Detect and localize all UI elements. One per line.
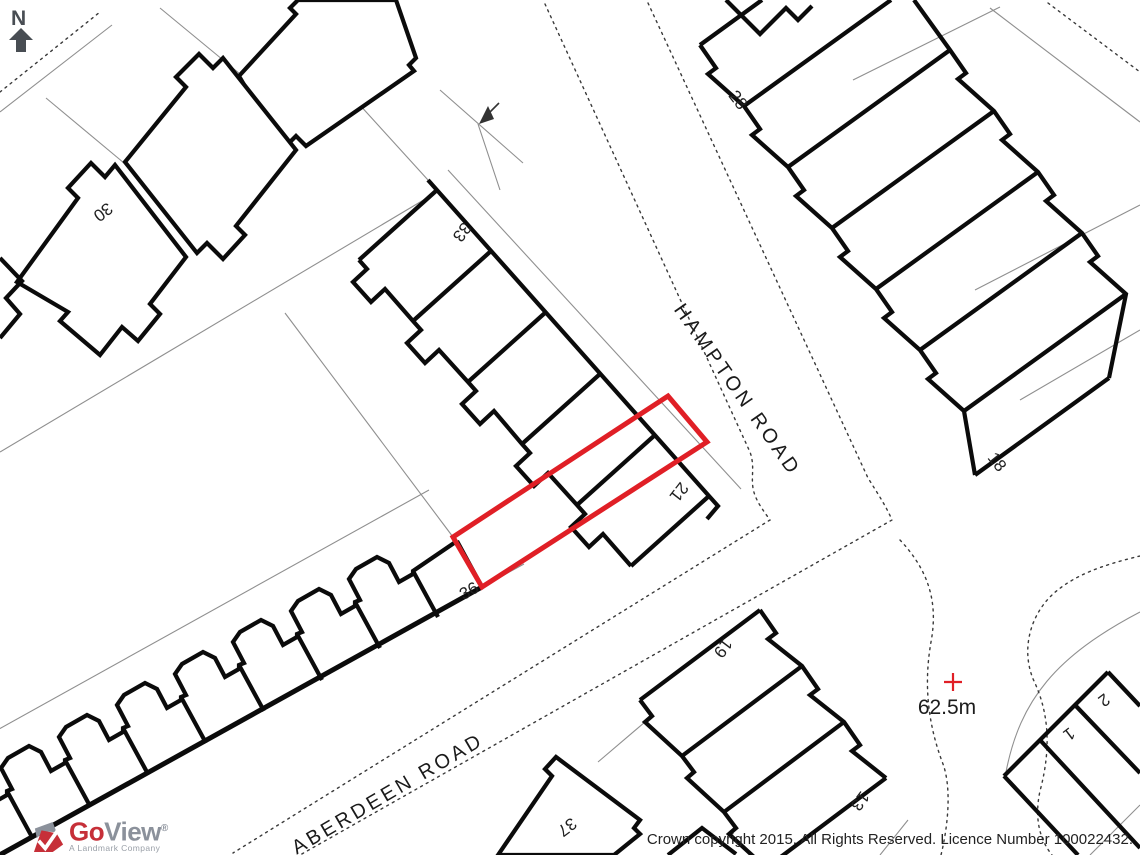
north-label: N: [11, 7, 26, 30]
north-arrow: N: [9, 7, 33, 52]
road-label-aberdeen: ABERDEEN ROAD: [288, 729, 488, 855]
buildings-middle-terrace: [353, 180, 718, 566]
copyright-notice: Crown copyright 2015. All Rights Reserve…: [647, 831, 1133, 848]
hampton-road-east-edge: [300, 3, 892, 855]
site-plan-map: 62.5m HAMPTON ROAD ABERDEEN ROAD 30 33 2…: [0, 0, 1140, 855]
spot-height-marker: 62.5m: [918, 673, 976, 719]
spot-height-label: 62.5m: [918, 696, 976, 719]
buildings-south-block: [498, 610, 886, 855]
top-right-road-edge: [1048, 3, 1140, 72]
open-space-edge-right: [1028, 556, 1140, 855]
site-plan-page: 62.5m HAMPTON ROAD ABERDEEN ROAD 30 33 2…: [0, 0, 1140, 855]
house-number-2: 2: [1095, 690, 1114, 711]
goview-logo: GoView® A Landmark Company: [33, 819, 168, 853]
spot-height-cross-icon: [944, 673, 962, 691]
goview-logo-icon: [33, 821, 65, 853]
house-number-1: 1: [1060, 724, 1079, 745]
goview-logo-text: GoView® A Landmark Company: [69, 819, 168, 853]
house-number-33: 33: [449, 219, 476, 246]
building-37: [498, 757, 640, 855]
buildings-bottom-right-block: [1004, 672, 1140, 855]
right-block-east-edge: [914, 0, 1126, 378]
house-number-19: 19: [710, 635, 737, 662]
goview-wordmark: GoView®: [69, 819, 168, 842]
house-number-21: 21: [666, 479, 693, 506]
buildings-top-left-block: [0, 0, 416, 355]
survey-arrow-icon: [479, 103, 499, 124]
buildings-aberdeen-terrace: [0, 541, 482, 855]
buildings-right-block: [700, 0, 1126, 475]
south-terrace-ne-edge: [760, 610, 886, 778]
registered-mark: ®: [161, 823, 168, 834]
logo-tagline: A Landmark Company: [69, 843, 168, 853]
